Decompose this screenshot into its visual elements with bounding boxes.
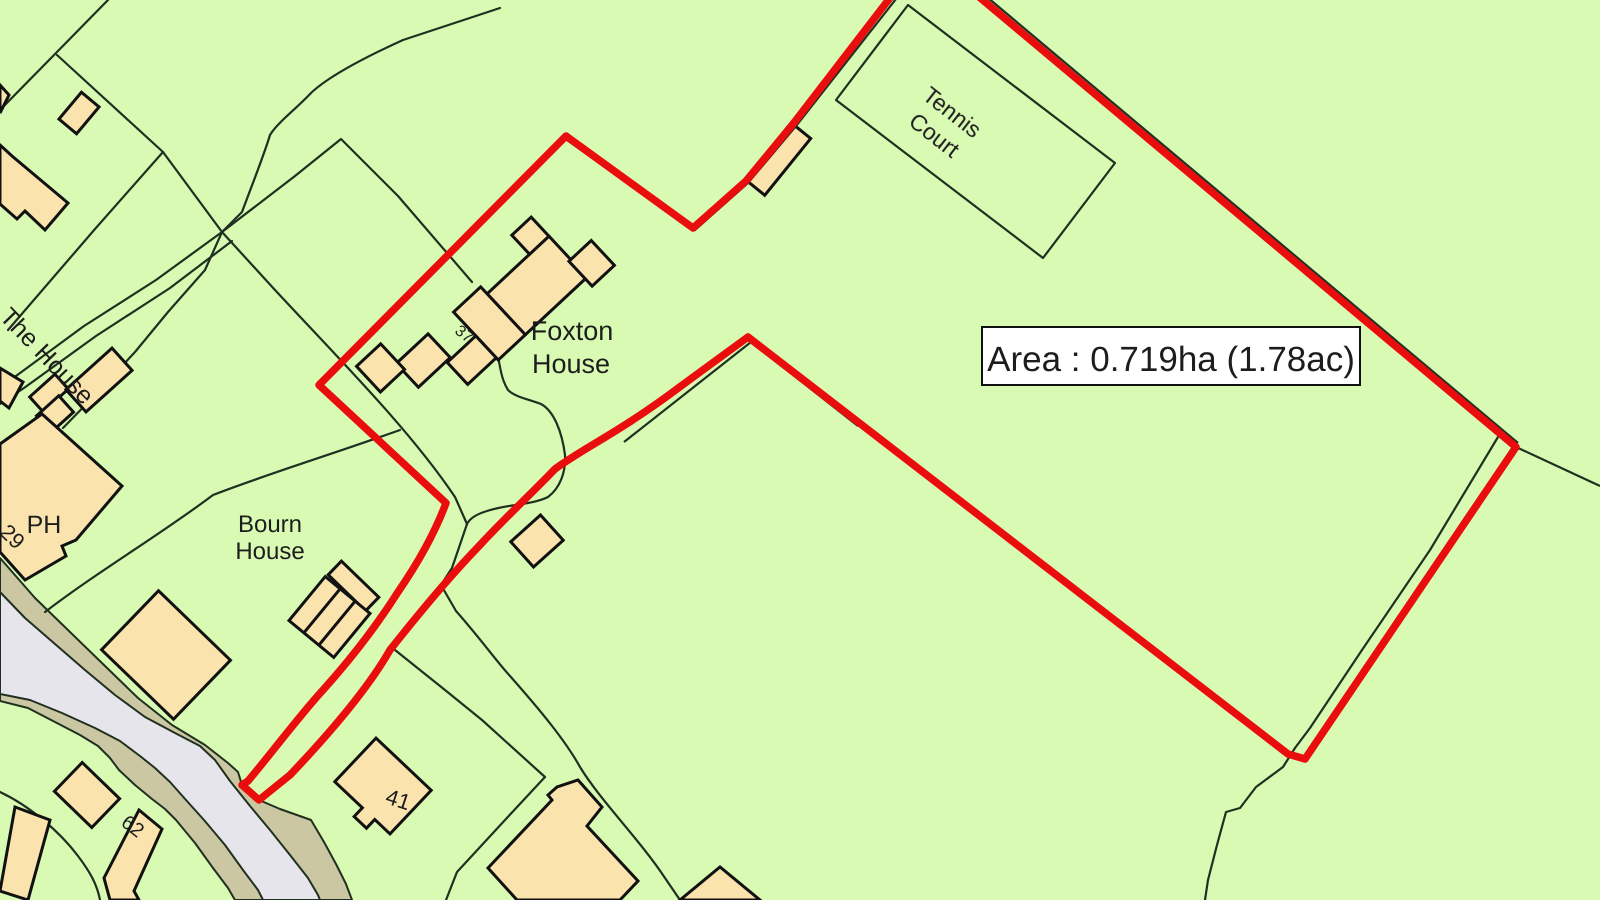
svg-text:House: House bbox=[235, 538, 304, 565]
svg-text:PH: PH bbox=[27, 511, 62, 539]
svg-text:Area : 0.719ha (1.78ac): Area : 0.719ha (1.78ac) bbox=[987, 340, 1355, 379]
svg-text:Foxton: Foxton bbox=[531, 316, 614, 346]
svg-text:House: House bbox=[532, 349, 610, 379]
svg-text:Bourn: Bourn bbox=[238, 511, 302, 538]
